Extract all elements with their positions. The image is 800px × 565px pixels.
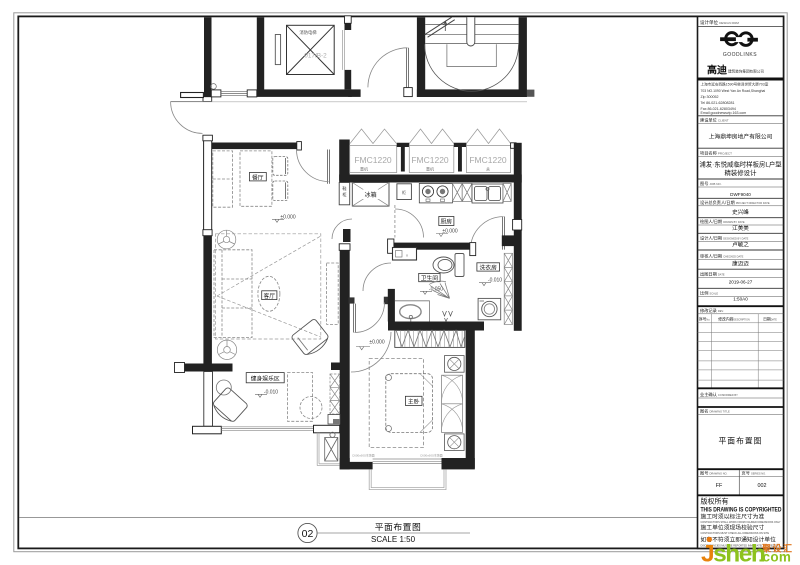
svg-text:餐厅: 餐厅 — [252, 173, 264, 181]
svg-text:FMC1220: FMC1220 — [469, 155, 507, 165]
svg-text:2019-06-27: 2019-06-27 — [729, 280, 753, 285]
svg-text:设计单位 DESIGN FIRM: 设计单位 DESIGN FIRM — [700, 19, 739, 26]
svg-text:施工单位须现场校验尺寸: 施工单位须现场校验尺寸 — [701, 524, 765, 532]
svg-text:FMC1220: FMC1220 — [354, 155, 392, 165]
svg-text:冰箱: 冰箱 — [365, 191, 377, 199]
svg-text:017/B-2: 017/B-2 — [304, 53, 327, 60]
svg-text:史兴峰: 史兴峰 — [732, 208, 749, 216]
svg-text:洗衣房: 洗衣房 — [479, 264, 497, 272]
svg-text:GOODLINKS: GOODLINKS — [723, 52, 757, 58]
svg-text:C600x600木饰面: C600x600木饰面 — [352, 453, 375, 458]
svg-text:重机: 重机 — [360, 166, 368, 172]
svg-text:1:50A0: 1:50A0 — [733, 297, 748, 302]
svg-text:柜: 柜 — [342, 191, 346, 198]
svg-text:版权所有: 版权所有 — [701, 497, 729, 506]
svg-text:客厅: 客厅 — [263, 292, 275, 300]
svg-text:施工时须以标注尺寸为准: 施工时须以标注尺寸为准 — [701, 513, 765, 521]
svg-text:上海市延安西路1590号继泽世贸大厦703室: 上海市延安西路1590号继泽世贸大厦703室 — [701, 82, 769, 87]
svg-text:02: 02 — [302, 528, 314, 540]
svg-text:CONTRACTORS SHALL WORK FROM FI: CONTRACTORS SHALL WORK FROM FIGURED DIME… — [701, 521, 781, 524]
svg-text:精装修设计: 精装修设计 — [725, 168, 758, 177]
svg-text:主卧: 主卧 — [408, 398, 420, 406]
svg-text:SCALE 1:50: SCALE 1:50 — [371, 535, 416, 544]
svg-text:柜: 柜 — [402, 189, 406, 195]
svg-text:±0.000: ±0.000 — [369, 339, 384, 345]
svg-text:FF: FF — [716, 483, 723, 489]
svg-text:浦发·东悦威临时样板房L户型: 浦发·东悦威临时样板房L户型 — [699, 160, 782, 169]
svg-text:C600x600木饰面: C600x600木饰面 — [420, 453, 443, 458]
svg-text:Zip 300052: Zip 300052 — [701, 95, 719, 99]
svg-text:项目名称 PROJECT: 项目名称 PROJECT — [700, 149, 732, 156]
svg-text:健身娱乐区: 健身娱乐区 — [251, 375, 280, 383]
svg-text:康迈迈: 康迈迈 — [732, 260, 749, 268]
svg-text:002: 002 — [758, 483, 767, 489]
svg-text:平面布置图: 平面布置图 — [375, 521, 422, 532]
svg-text:平面布置图: 平面布置图 — [719, 436, 763, 446]
svg-text:建设单位 CLIENT: 建设单位 CLIENT — [700, 116, 729, 123]
svg-text:DWF9040: DWF9040 — [730, 192, 751, 197]
svg-text:建筑装饰集团有限公司: 建筑装饰集团有限公司 — [728, 69, 764, 74]
svg-text:高迪: 高迪 — [707, 64, 727, 77]
svg-text:Jsheh: Jsheh — [701, 541, 765, 565]
svg-text:703 NO.1090 West Yan An Road,S: 703 NO.1090 West Yan An Road,Shanghai — [701, 89, 766, 93]
svg-text:卢敏之: 卢敏之 — [732, 241, 749, 249]
svg-text:Tel 86-021-62808281: Tel 86-021-62808281 — [701, 101, 735, 105]
svg-text:.com: .com — [759, 550, 792, 565]
svg-text:THIS DRAWING IS COPYRIGHTED: THIS DRAWING IS COPYRIGHTED — [701, 508, 783, 514]
svg-text:江美美: 江美美 — [732, 224, 749, 232]
svg-text:x: x — [406, 254, 408, 258]
svg-text:关: 关 — [486, 166, 490, 172]
svg-text:Email goodnewsvip.163.com: Email goodnewsvip.163.com — [701, 111, 747, 115]
svg-text:上海鼎坤房地产有限公司: 上海鼎坤房地产有限公司 — [709, 133, 773, 141]
svg-text:CONTRACTORS MUST CHECK ALL DIM: CONTRACTORS MUST CHECK ALL DIMENSIONS ON… — [701, 532, 770, 535]
svg-text:重机: 重机 — [426, 166, 434, 172]
svg-text:厨房: 厨房 — [440, 218, 452, 226]
svg-text:消防电梯: 消防电梯 — [299, 29, 317, 36]
svg-text:卫生间: 卫生间 — [421, 274, 439, 282]
svg-text:FMC1220: FMC1220 — [411, 155, 449, 165]
